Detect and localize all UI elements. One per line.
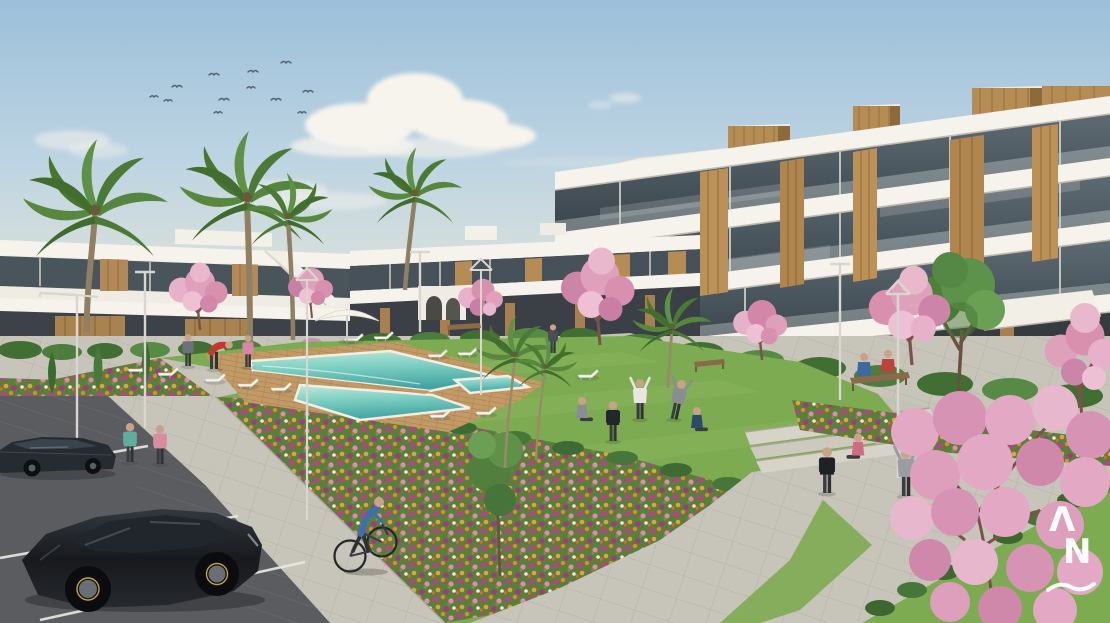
car-sedan [0,437,116,480]
logo-wave-icon [1045,577,1097,595]
render-canvas: Λ N [0,0,1110,623]
roof-bulkhead [465,226,497,240]
roof-box [540,223,566,235]
logo-glyph-n: N [1063,535,1091,569]
developer-logo-watermark: Λ N [1043,505,1103,610]
arch-feature [418,286,466,320]
